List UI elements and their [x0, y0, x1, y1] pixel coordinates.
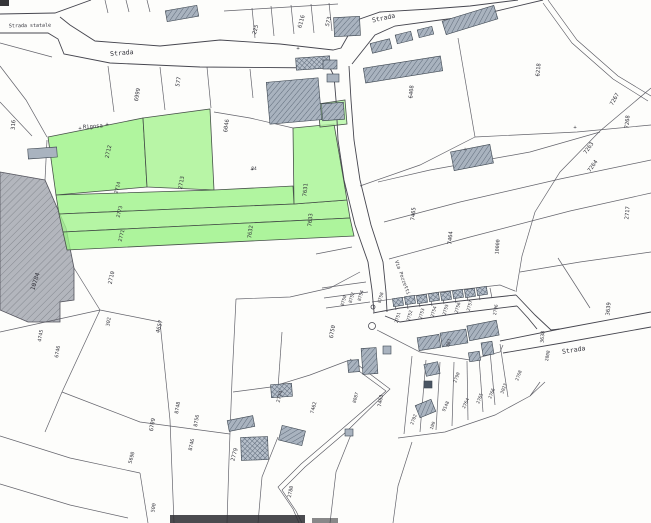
building — [323, 60, 337, 69]
parcel-number-label: 316 — [11, 120, 18, 130]
parcel-number-label: 7268 — [624, 115, 631, 129]
building — [348, 360, 360, 373]
building — [345, 429, 353, 436]
building — [424, 362, 440, 377]
highlighted-parcel-2713 — [143, 109, 214, 190]
building — [452, 289, 463, 298]
building — [361, 348, 378, 375]
map-svg: Strada stataleStradaStradaStradaVia Pozz… — [0, 0, 651, 523]
parcel-number-label: 2717 — [624, 206, 631, 220]
parcel-number-label: 6218 — [535, 63, 542, 77]
parcel-number-label: 3638 — [539, 331, 546, 344]
parcel-number-label: 3639 — [605, 302, 612, 316]
building — [440, 291, 451, 300]
road-name-label: Strada statale — [9, 23, 51, 30]
building — [468, 351, 480, 362]
building — [383, 346, 391, 354]
building — [241, 437, 269, 461]
building — [428, 292, 439, 301]
building — [481, 341, 494, 356]
parcel-number-label: 6408 — [408, 85, 415, 99]
building — [327, 74, 339, 82]
parcel-number-label: 7631 — [302, 183, 309, 197]
building — [392, 297, 403, 306]
scan-artifact — [312, 518, 338, 523]
parcel-number-label: 7464 — [447, 230, 454, 244]
building — [334, 16, 361, 36]
scan-artifact — [0, 0, 9, 6]
scan-artifact — [170, 515, 305, 523]
building — [424, 381, 432, 388]
map-background — [0, 0, 651, 523]
building — [321, 102, 344, 120]
building — [404, 295, 415, 304]
parcel-number-label: 7465 — [410, 207, 417, 221]
building — [416, 294, 427, 303]
building — [476, 286, 487, 295]
parcel-number-label: 7633 — [307, 213, 314, 227]
building — [464, 288, 475, 297]
building — [28, 147, 58, 159]
cadastral-map: Strada stataleStradaStradaStradaVia Pozz… — [0, 0, 651, 523]
building — [266, 78, 321, 124]
